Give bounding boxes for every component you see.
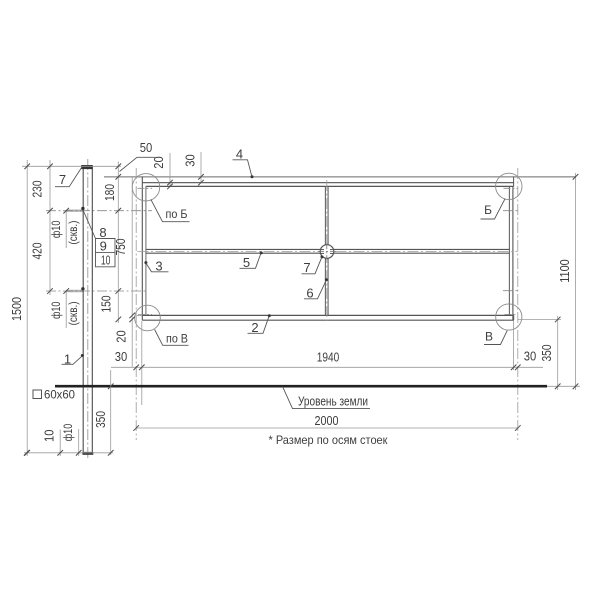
svg-text:6: 6 [306,285,313,300]
svg-text:1100: 1100 [557,259,572,283]
svg-text:Б: Б [484,203,492,217]
svg-text:3: 3 [155,259,162,274]
svg-text:* Размер по осям стоек: * Размер по осям стоек [269,433,389,447]
svg-text:7: 7 [303,260,310,275]
svg-text:Уровень земли: Уровень земли [298,394,368,408]
svg-text:50: 50 [140,140,153,155]
svg-text:1: 1 [64,352,71,367]
svg-text:по Б: по Б [166,207,188,221]
svg-text:10: 10 [101,253,111,268]
svg-text:30: 30 [182,154,197,167]
svg-text:по В: по В [166,331,188,345]
svg-text:150: 150 [98,296,113,313]
svg-text:350: 350 [93,411,108,428]
svg-text:2000: 2000 [315,413,339,428]
svg-text:4: 4 [236,146,243,161]
svg-text:ф10: ф10 [49,301,63,319]
svg-text:180: 180 [102,184,117,201]
svg-text:30: 30 [524,349,537,364]
svg-text:1500: 1500 [9,297,24,321]
svg-text:(скв.): (скв.) [66,301,80,325]
svg-text:ф10: ф10 [49,220,63,238]
svg-text:20: 20 [151,156,166,169]
svg-text:20: 20 [113,330,128,343]
svg-text:2: 2 [251,320,258,335]
svg-text:1940: 1940 [317,350,340,365]
svg-text:7: 7 [59,172,66,187]
svg-text:750: 750 [113,239,128,256]
svg-text:60x60: 60x60 [44,388,75,402]
svg-text:В: В [485,330,493,344]
svg-text:10: 10 [41,430,56,443]
svg-text:9: 9 [100,239,107,254]
svg-text:350: 350 [539,345,554,362]
svg-text:230: 230 [29,181,44,198]
svg-text:420: 420 [29,243,44,260]
svg-text:ф10: ф10 [61,424,75,442]
svg-text:5: 5 [243,255,250,270]
svg-text:30: 30 [115,349,128,364]
svg-text:(скв.): (скв.) [66,220,80,244]
